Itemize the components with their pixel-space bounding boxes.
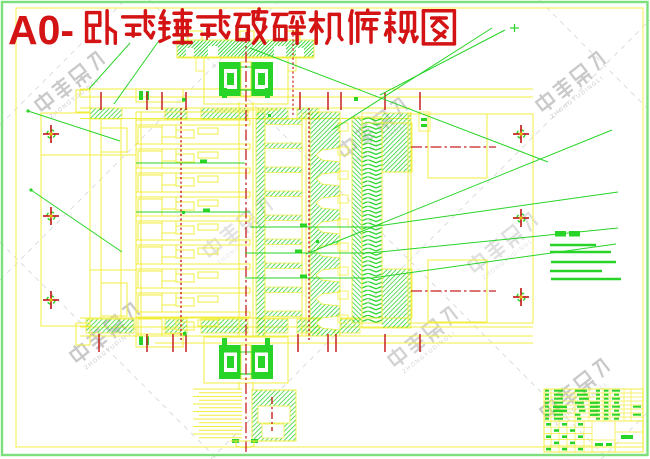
svg-text:A0-: A0- [8,7,74,53]
